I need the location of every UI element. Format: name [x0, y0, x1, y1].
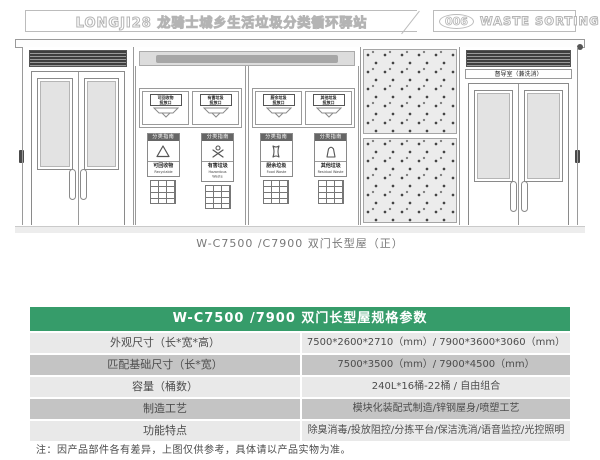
deposit-unit-hazardous: 有害垃圾 投放口: [192, 91, 239, 125]
spec-table-title: W-C7500 /7900 双门长型屋规格参数: [30, 307, 570, 331]
page-number-badge: 006: [439, 14, 474, 29]
spec-table: W-C7500 /7900 双门长型屋规格参数 外观尺寸（长*宽*高） 7500…: [30, 307, 570, 441]
door-handles: [510, 181, 528, 212]
deposit-chute-icon: [265, 107, 293, 118]
station-elevation-drawing: 可回收物 投放口 有害垃圾 投放口: [22, 47, 578, 225]
bay-2: 厨余垃圾 投放口 其他垃圾 投放口: [248, 66, 359, 225]
bay-1: 可回收物 投放口 有害垃圾 投放口: [135, 66, 246, 225]
door-window: [84, 78, 120, 170]
row-value: 除臭消毒/投放阻控/分拣平台/保洁洗消/语音监控/光控照明: [302, 421, 570, 441]
info-grid: [318, 180, 344, 204]
door-leaf: [32, 72, 78, 225]
deposit-frame: 可回收物 投放口 有害垃圾 投放口: [139, 88, 242, 128]
banner-slant-divider: [401, 11, 420, 34]
deposit-chute-icon: [152, 107, 180, 118]
right-doorframe: [468, 83, 569, 225]
sign-column-residual: 分类指南 其他垃圾 Residual Waste: [314, 133, 347, 204]
sign-name-cn: 可回收物: [148, 163, 179, 169]
left-doorframe: [31, 71, 125, 225]
cladding-panel-bottom: [363, 138, 457, 223]
sign-header: 分类指南: [261, 134, 292, 141]
hazardous-icon: [202, 141, 233, 161]
row-value: 7500*2600*2710（mm）/ 7900*3600*3060（mm）: [302, 333, 570, 353]
deposit-bays-section: 可回收物 投放口 有害垃圾 投放口: [134, 47, 360, 225]
info-grid: [150, 180, 176, 204]
deposit-unit-residual: 其他垃圾 投放口: [305, 91, 352, 125]
table-row: 容量（桶数） 240L*16桶-22桶 / 自由组合: [30, 377, 570, 397]
residual-waste-icon: [315, 141, 346, 161]
row-value: 7500*3500（mm）/ 7900*4500（mm）: [302, 355, 570, 375]
right-door-section: 督导室（兼洗消）: [460, 47, 578, 225]
table-row: 功能特点 除臭消毒/投放阻控/分拣平台/保洁洗消/语音监控/光控照明: [30, 421, 570, 441]
stone-cladding-section: [360, 47, 460, 225]
brand-title: LONGJI28 龙骑士城乡生活垃圾分类循环驿站: [76, 12, 368, 31]
english-title: WASTE SORTING STATION: [480, 14, 600, 28]
port-label: 其他垃圾 投放口: [313, 94, 345, 106]
table-row: 外观尺寸（长*宽*高） 7500*2600*2710（mm）/ 7900*360…: [30, 333, 570, 353]
left-door-section: [22, 47, 134, 225]
door-leaf: [78, 72, 125, 225]
row-label: 容量（桶数）: [30, 377, 300, 397]
sign-name-en: Hazardous Waste: [205, 170, 231, 179]
door-window: [474, 90, 513, 182]
sign-column-food-waste: 分类指南 厨余垃圾 Food Waste: [260, 133, 293, 204]
row-label: 制造工艺: [30, 399, 300, 419]
deposit-frame: 厨余垃圾 投放口 其他垃圾 投放口: [252, 88, 355, 128]
sign-header: 分类指南: [148, 134, 179, 141]
cladding-panel-top: [363, 49, 457, 134]
port-label: 可回收物 投放口: [150, 94, 182, 106]
row-label: 匹配基础尺寸（长*宽）: [30, 355, 300, 375]
sign-header: 分类指南: [315, 134, 346, 141]
sign-name-en: Recyclable: [150, 169, 176, 173]
deposit-chute-icon: [315, 107, 343, 118]
signboard-panel: [156, 55, 338, 63]
louver-vent-right: [466, 50, 571, 67]
sign-name-en: Food Waste: [263, 169, 289, 173]
table-row: 匹配基础尺寸（长*宽） 7500*3500（mm）/ 7900*4500（mm）: [30, 355, 570, 375]
banner-subtitle-box: 006 WASTE SORTING STATION: [433, 10, 576, 32]
sign-name-cn: 其他垃圾: [315, 163, 346, 169]
table-row: 制造工艺 模块化装配式制造/锌钢屋身/喷塑工艺: [30, 399, 570, 419]
info-grid: [263, 180, 289, 204]
door-window: [524, 90, 563, 182]
room-label: 督导室（兼洗消）: [465, 69, 572, 79]
sign-column-hazardous: 分类指南 有害垃圾 Hazardous Waste: [201, 133, 234, 209]
louver-vent-left: [29, 50, 127, 67]
sign-name-en: Residual Waste: [318, 169, 344, 173]
banner-title-box: LONGJI28 龙骑士城乡生活垃圾分类循环驿站: [25, 10, 417, 32]
sign-column-recyclable: 分类指南 可回收物 Recyclable: [147, 133, 180, 209]
recycle-icon: [148, 141, 179, 161]
food-waste-icon: [261, 141, 292, 161]
deposit-unit-food-waste: 厨余垃圾 投放口: [255, 91, 302, 125]
sign-header: 分类指南: [202, 134, 233, 141]
signboard: [139, 51, 355, 66]
row-label: 外观尺寸（长*宽*高）: [30, 333, 300, 353]
product-spec-page: { "header": { "left_title": "LONGJI28 龙骑…: [0, 0, 600, 460]
info-grid: [205, 185, 231, 209]
sign-name-cn: 有害垃圾: [202, 163, 233, 169]
footnote: 注：因产品部件各有差异，上图仅供参考，具体请以产品实物为准。: [36, 441, 351, 456]
deposit-chute-icon: [202, 107, 230, 118]
row-value: 模块化装配式制造/锌钢屋身/喷塑工艺: [302, 399, 570, 419]
row-label: 功能特点: [30, 421, 300, 441]
door-window: [37, 78, 73, 170]
ground-line: [15, 226, 585, 233]
port-label: 有害垃圾 投放口: [200, 94, 232, 106]
deposit-unit-recyclable: 可回收物 投放口: [142, 91, 189, 125]
door-handles: [69, 169, 87, 200]
row-value: 240L*16桶-22桶 / 自由组合: [302, 377, 570, 397]
sign-name-cn: 厨余垃圾: [261, 163, 292, 169]
drawing-caption: W-C7500 /C7900 双门长型屋（正）: [0, 235, 600, 251]
port-label: 厨余垃圾 投放口: [263, 94, 295, 106]
